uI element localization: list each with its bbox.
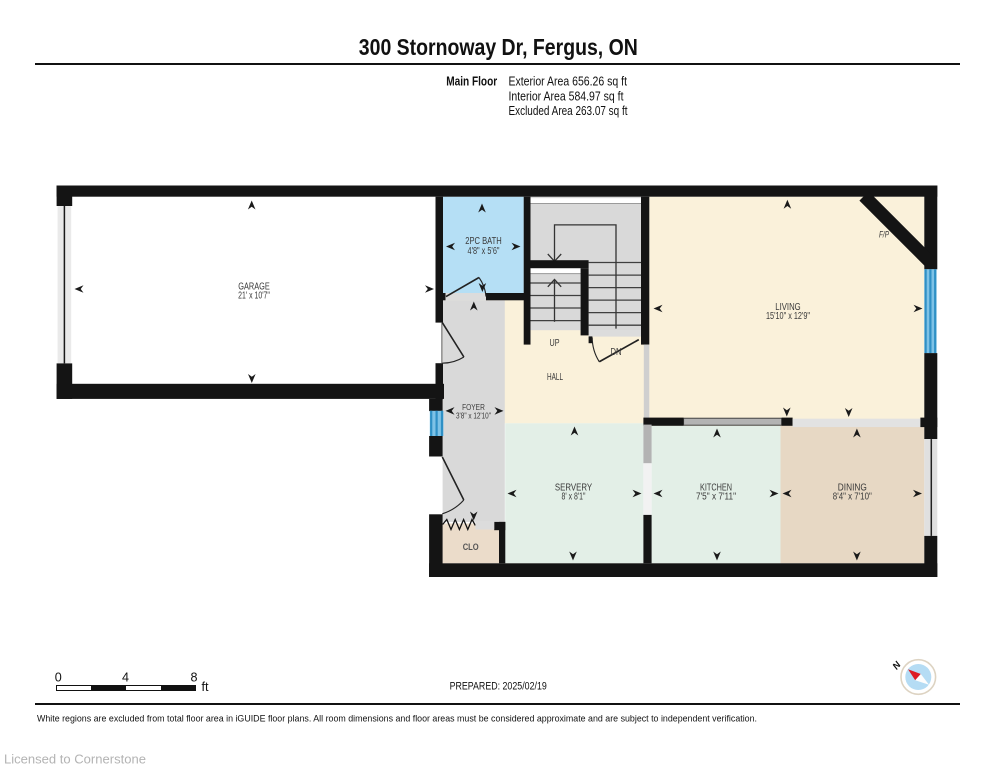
svg-text:8' x 8'1": 8' x 8'1" [562,492,586,503]
svg-text:21' x 10'7": 21' x 10'7" [238,290,270,301]
svg-text:4: 4 [122,671,129,685]
svg-text:Excluded Area 263.07 sq ft: Excluded Area 263.07 sq ft [509,104,628,118]
svg-text:300 Stornoway Dr, Fergus, ON: 300 Stornoway Dr, Fergus, ON [359,34,638,60]
svg-text:DN: DN [611,347,622,358]
svg-text:0: 0 [55,671,62,685]
svg-text:UP: UP [550,338,560,349]
svg-text:PREPARED: 2025/02/19: PREPARED: 2025/02/19 [450,680,547,692]
svg-text:15'10" x 12'9": 15'10" x 12'9" [766,311,810,322]
svg-text:Main Floor: Main Floor [446,73,497,88]
svg-text:Exterior Area 656.26 sq ft: Exterior Area 656.26 sq ft [509,75,628,89]
svg-text:8: 8 [190,671,197,685]
svg-text:Licensed to Cornerstone: Licensed to Cornerstone [4,752,146,767]
svg-text:CLO: CLO [463,542,479,552]
svg-text:F/P: F/P [879,230,889,240]
svg-text:4'8" x 5'6": 4'8" x 5'6" [468,246,500,257]
svg-text:Interior Area 584.97 sq ft: Interior Area 584.97 sq ft [509,89,624,103]
svg-text:8'4" x 7'10": 8'4" x 7'10" [833,492,872,503]
svg-text:3'8" x 12'10": 3'8" x 12'10" [456,411,491,420]
svg-text:2PC BATH: 2PC BATH [465,236,502,247]
svg-text:HALL: HALL [547,372,563,383]
svg-text:ft: ft [202,680,209,694]
svg-text:White regions are excluded fro: White regions are excluded from total fl… [37,714,757,725]
svg-text:7'5" x 7'11": 7'5" x 7'11" [696,492,736,503]
